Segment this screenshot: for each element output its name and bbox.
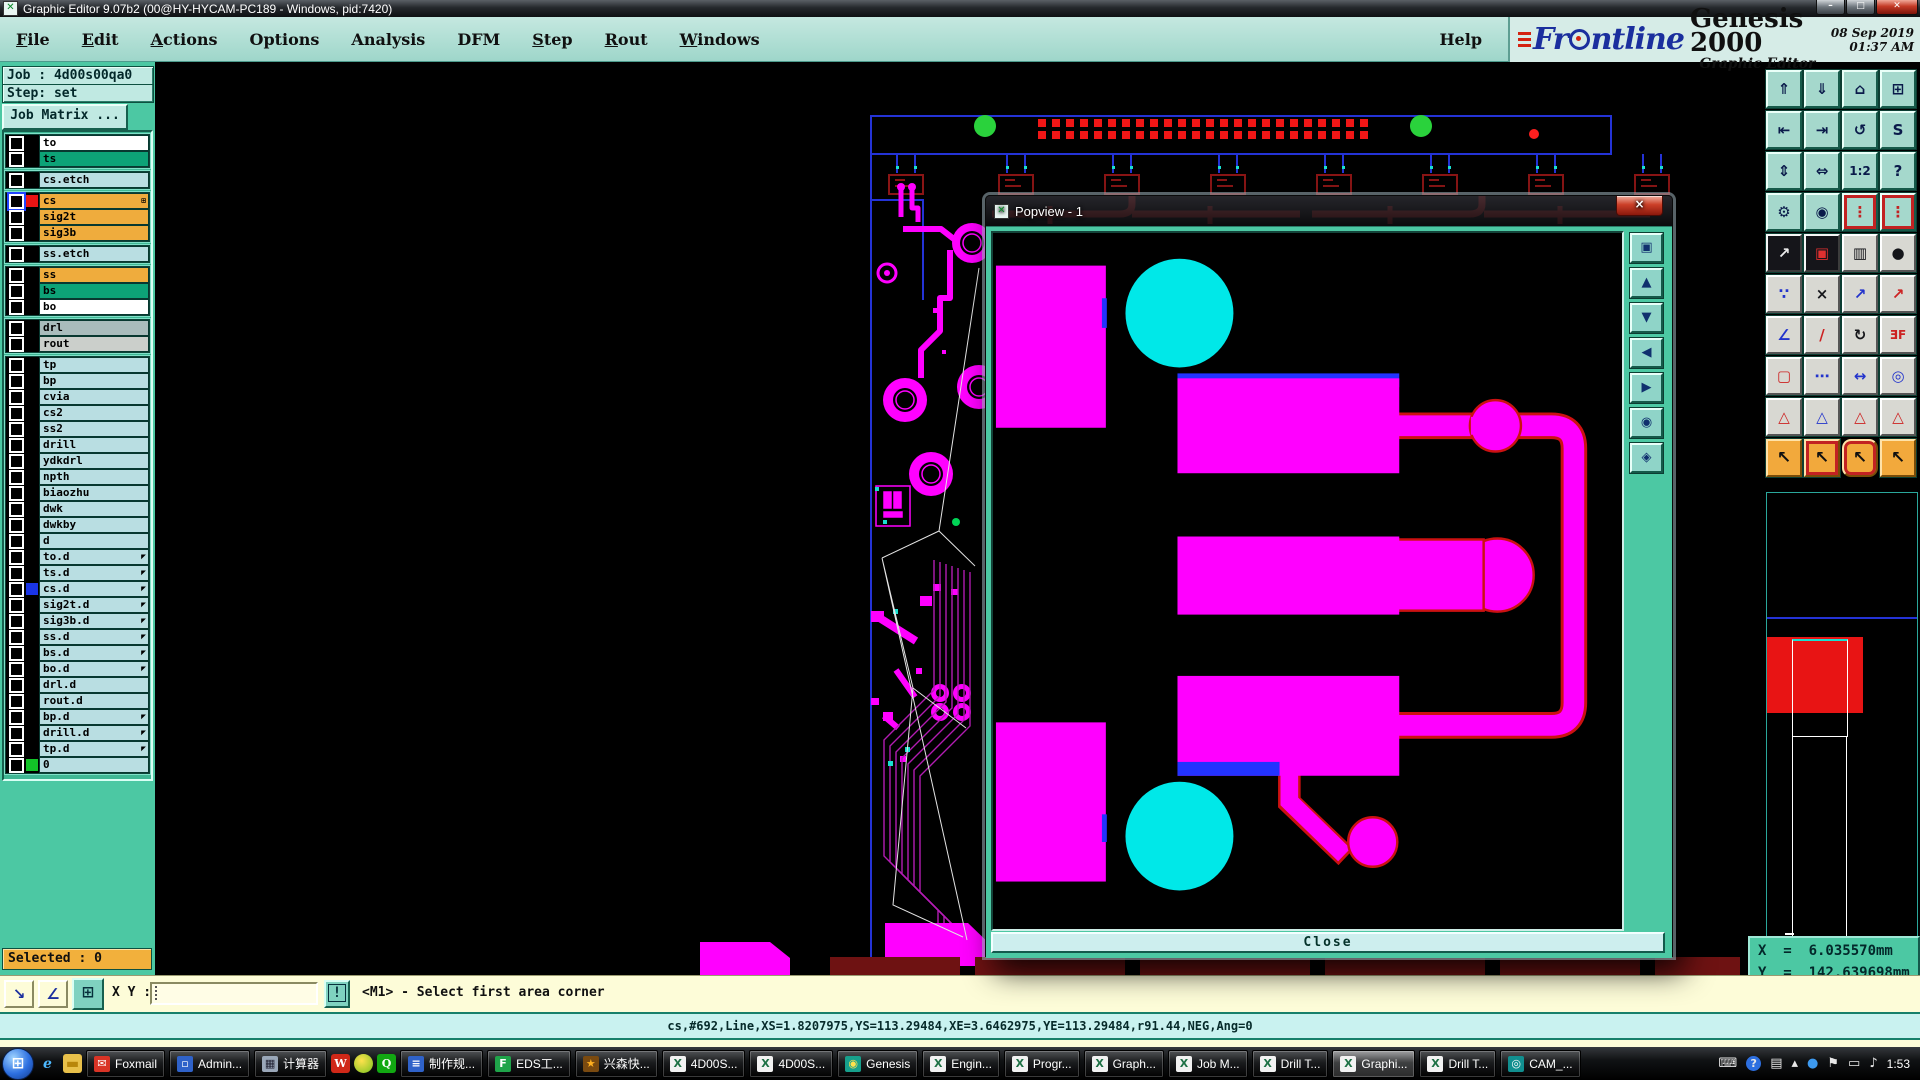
layer-visibility-checkbox[interactable]	[9, 152, 24, 167]
layer-visibility-checkbox[interactable]	[9, 321, 24, 336]
measure-ruler-button[interactable]: ▥	[1842, 234, 1878, 272]
system-tray: ⌨?▤▴●⚑▭♪ 1:53	[1718, 1056, 1920, 1071]
layer-name[interactable]: ss.etch	[39, 246, 149, 262]
layer-color-swatch[interactable]	[26, 551, 38, 563]
layer-name[interactable]: drill.d◤	[39, 725, 149, 741]
layer-name[interactable]: biaozhu	[39, 485, 149, 501]
layer-color-swatch[interactable]	[26, 301, 38, 313]
layer-name[interactable]: tp.d◤	[39, 741, 149, 757]
pan-right-icon[interactable]: ▶	[1630, 373, 1663, 403]
taskbar-item-xapp[interactable]: XJob M...	[1168, 1050, 1248, 1078]
layer-visibility-checkbox[interactable]	[9, 422, 24, 437]
layer-color-swatch[interactable]	[26, 137, 38, 149]
zoom-1-2-button[interactable]: 1:2	[1842, 152, 1878, 190]
layer-visibility-checkbox[interactable]	[9, 630, 24, 645]
text-caret	[155, 986, 157, 1001]
layer-row-d[interactable]: d	[6, 533, 149, 549]
layer-row-biaozhu[interactable]: biaozhu	[6, 485, 149, 501]
layer-name[interactable]: cs2	[39, 405, 149, 421]
layer-row-bo.d[interactable]: bo.d◤	[6, 661, 149, 677]
layer-visibility-checkbox[interactable]	[9, 136, 24, 151]
menu-options[interactable]: Options	[250, 30, 320, 49]
window-title-bar[interactable]: ✕ Graphic Editor 9.07b2 (00@HY-HYCAM-PC1…	[0, 0, 1920, 17]
job-step-box: Job : 4d00s00qa0 Step: set	[2, 66, 154, 103]
layer-color-swatch[interactable]	[26, 248, 38, 260]
layer-name[interactable]: rout	[39, 336, 149, 352]
layer-color-swatch[interactable]	[26, 519, 38, 531]
excel-icon: X	[757, 1056, 773, 1072]
popview-window[interactable]: ✕ Popview - 1 ×	[985, 195, 1673, 957]
layer-row-bp[interactable]: bp	[6, 373, 149, 389]
layer-visibility-checkbox[interactable]	[9, 566, 24, 581]
show-hidden-icon[interactable]: ▴	[1792, 1056, 1799, 1071]
select-single-button[interactable]: ↖	[1766, 439, 1802, 477]
job-label: Job : 4d00s00qa0	[3, 67, 153, 85]
layer-row-npth[interactable]: npth	[6, 469, 149, 485]
layer-row-ydkdrl[interactable]: ydkdrl	[6, 453, 149, 469]
layer-name[interactable]: ss	[39, 267, 149, 283]
folder-icon[interactable]: ▬	[63, 1054, 82, 1073]
brand-panel: Frntline Genesis 2000 Graphic Editor 08 …	[1508, 17, 1920, 62]
layer-visibility-checkbox[interactable]	[9, 470, 24, 485]
layer-name[interactable]: cs.etch	[39, 172, 149, 188]
select-pad-move-button[interactable]: ↗	[1766, 234, 1802, 272]
star-orange-icon: ★	[583, 1056, 599, 1072]
menu-actions[interactable]: Actions	[151, 30, 218, 49]
pan-view-button[interactable]: ⇔	[1804, 152, 1840, 190]
layer-name[interactable]: to	[39, 135, 149, 151]
layer-row-ss[interactable]: ss	[6, 267, 149, 283]
layer-visibility-checkbox[interactable]	[9, 268, 24, 283]
layer-name[interactable]: ss2	[39, 421, 149, 437]
layer-visibility-checkbox[interactable]	[9, 678, 24, 693]
layer-name[interactable]: bo	[39, 299, 149, 315]
green-app-icon[interactable]: Q	[377, 1054, 396, 1073]
layer-name[interactable]: to.d◤	[39, 549, 149, 565]
layer-visibility-checkbox[interactable]	[9, 173, 24, 188]
line-mode-button[interactable]: /	[1804, 316, 1840, 354]
ie-icon[interactable]: e	[38, 1054, 57, 1073]
layer-visibility-checkbox[interactable]	[9, 550, 24, 565]
selected-count: Selected : 0	[2, 948, 152, 970]
layer-color-swatch[interactable]	[26, 567, 38, 579]
grid-toggle-button[interactable]: ⊞	[72, 978, 104, 1010]
layer-visibility-checkbox[interactable]	[9, 226, 24, 241]
layer-visibility-checkbox[interactable]	[9, 390, 24, 405]
foxmail-icon: ✉	[94, 1056, 110, 1072]
taskbar-item-xapp[interactable]: XProgr...	[1004, 1050, 1080, 1078]
layer-row-ss2[interactable]: ss2	[6, 421, 149, 437]
layer-row-drill[interactable]: drill	[6, 437, 149, 453]
layer-color-swatch[interactable]	[26, 535, 38, 547]
zoom-out-icon[interactable]: ◈	[1630, 443, 1663, 473]
layer-color-swatch[interactable]	[26, 211, 38, 223]
taskbar-item-label: 4D00S...	[691, 1057, 738, 1071]
layer-row-sig2t[interactable]: sig2t	[6, 209, 149, 225]
serpentine-view-button[interactable]: S	[1880, 111, 1916, 149]
layer-visibility-checkbox[interactable]	[9, 662, 24, 677]
swap-frames-button[interactable]: ▣	[1804, 234, 1840, 272]
layer-visibility-checkbox[interactable]	[9, 247, 24, 262]
layer-row-cs2[interactable]: cs2	[6, 405, 149, 421]
maximize-button[interactable]: □	[1846, 0, 1875, 15]
layer-visibility-checkbox[interactable]	[9, 646, 24, 661]
layer-name[interactable]: cs.d◤	[39, 581, 149, 597]
menu-rout[interactable]: Rout	[605, 30, 648, 49]
move-origin-button[interactable]: ↗	[1842, 275, 1878, 313]
layer-visibility-checkbox[interactable]	[9, 598, 24, 613]
snap-target-button[interactable]: ◉	[1804, 193, 1840, 231]
zoom-page-down-button[interactable]: ⇓	[1804, 70, 1840, 108]
layer-row-bp.d[interactable]: bp.d◤	[6, 709, 149, 725]
layer-row-cvia[interactable]: cvia	[6, 389, 149, 405]
pan-left-icon[interactable]: ◀	[1630, 338, 1663, 368]
layer-visibility-checkbox[interactable]	[9, 582, 24, 597]
layer-visibility-checkbox[interactable]	[9, 210, 24, 225]
select-chain-button[interactable]: ↖	[1880, 439, 1916, 477]
delete-mode-button[interactable]: ×	[1804, 275, 1840, 313]
taskbar-item-genesis[interactable]: ◉Genesis	[837, 1050, 918, 1078]
taskbar-item-calculator[interactable]: ▦计算器	[254, 1050, 327, 1078]
layer-visibility-checkbox[interactable]	[9, 284, 24, 299]
layer-color-swatch[interactable]	[26, 338, 38, 350]
menu-help[interactable]: Help	[1439, 30, 1482, 49]
menu-dfm[interactable]: DFM	[457, 30, 500, 49]
step-label: Step: set	[3, 85, 153, 102]
undo-view-button[interactable]: ↺	[1842, 111, 1878, 149]
layer-color-swatch[interactable]	[26, 711, 38, 723]
popview-windows-icon[interactable]: ▣	[1630, 233, 1663, 263]
view-next-button[interactable]: ⇥	[1804, 111, 1840, 149]
layer-visibility-checkbox[interactable]	[9, 694, 24, 709]
layer-color-swatch[interactable]	[26, 759, 38, 771]
show-desktop-icon[interactable]: ▤	[1770, 1056, 1782, 1071]
taskbar-item-label: Graphi...	[1361, 1057, 1407, 1071]
layer-row-tp[interactable]: tp	[6, 357, 149, 373]
layer-visibility-checkbox[interactable]	[9, 758, 24, 773]
help-tray-icon[interactable]: ?	[1746, 1056, 1761, 1071]
taskbar-item-label: Engin...	[951, 1057, 992, 1071]
layer-visibility-checkbox[interactable]	[9, 300, 24, 315]
drill-arrow-icon: ◤	[141, 662, 146, 676]
layer-name[interactable]: bo.d◤	[39, 661, 149, 677]
layer-color-swatch[interactable]	[26, 174, 38, 186]
layer-group: cs⊞sig2tsig3b	[5, 192, 150, 242]
taskbar-item-excel[interactable]: X4D00S...	[749, 1050, 833, 1078]
layer-name[interactable]: bp	[39, 373, 149, 389]
copy-origin-button[interactable]: ↗	[1880, 275, 1916, 313]
layer-visibility-checkbox[interactable]	[9, 438, 24, 453]
xapp-icon: X	[1340, 1056, 1356, 1072]
menu-step[interactable]: Step	[532, 30, 572, 49]
popview-art	[993, 233, 1622, 929]
layer-color-swatch[interactable]	[26, 359, 38, 371]
layer-visibility-checkbox[interactable]	[9, 454, 24, 469]
corner-select-button[interactable]: ↘	[4, 980, 34, 1008]
layer-visibility-checkbox[interactable]	[9, 358, 24, 373]
zoom-in-icon[interactable]: ◉	[1630, 408, 1663, 438]
layer-color-swatch[interactable]	[26, 322, 38, 334]
layer-row-bs.d[interactable]: bs.d◤	[6, 645, 149, 661]
split-window-xy-button[interactable]: ⊞	[1880, 70, 1916, 108]
keyboard-tray-icon[interactable]: ⌨	[1718, 1056, 1737, 1071]
layer-visibility-checkbox[interactable]	[9, 614, 24, 629]
pad-capture-button[interactable]: ●	[1880, 234, 1916, 272]
layer-color-swatch[interactable]	[26, 407, 38, 419]
layer-visibility-checkbox[interactable]	[9, 742, 24, 757]
taskbar-item-floppy[interactable]: ▫Admin...	[169, 1050, 250, 1078]
layer-row-cs.d[interactable]: cs.d◤	[6, 581, 149, 597]
layer-row-cs[interactable]: cs⊞	[6, 193, 149, 209]
layer-color-swatch[interactable]	[26, 391, 38, 403]
layer-row-to.d[interactable]: to.d◤	[6, 549, 149, 565]
layer-row-tp.d[interactable]: tp.d◤	[6, 741, 149, 757]
layer-row-bs[interactable]: bs	[6, 283, 149, 299]
layer-name[interactable]: bs.d◤	[39, 645, 149, 661]
drill-arrow-icon: ◤	[141, 726, 146, 740]
taskbar-item-label: 制作规...	[429, 1055, 475, 1072]
close-button[interactable]: ✕	[1876, 0, 1918, 15]
layer-visibility-checkbox[interactable]	[9, 502, 24, 517]
stretch-line-button[interactable]: ⋯	[1804, 357, 1840, 395]
layer-name[interactable]: cvia	[39, 389, 149, 405]
layer-name[interactable]: ss.d◤	[39, 629, 149, 645]
calculator-icon: ▦	[262, 1056, 278, 1072]
layer-color-swatch[interactable]	[26, 455, 38, 467]
setup-tools-button[interactable]: ⚙	[1766, 193, 1802, 231]
layer-name[interactable]: sig2t	[39, 209, 149, 225]
select-frame-button[interactable]: ↖	[1804, 439, 1840, 477]
layer-stoplight-a-button[interactable]: ⋮	[1842, 193, 1878, 231]
layer-row-ts[interactable]: ts	[6, 151, 149, 167]
popview-title-bar[interactable]: ✕ Popview - 1 ×	[986, 196, 1672, 226]
layer-color-swatch[interactable]	[26, 727, 38, 739]
drill-arrow-icon: ◤	[141, 742, 146, 756]
layer-color-swatch[interactable]	[26, 285, 38, 297]
layer-color-swatch[interactable]	[26, 269, 38, 281]
layer-stoplight-b-button[interactable]: ⋮	[1880, 193, 1916, 231]
layer-color-swatch[interactable]	[26, 153, 38, 165]
taskbar-item-star-orange[interactable]: ★兴森快...	[575, 1050, 658, 1078]
layer-color-swatch[interactable]	[26, 679, 38, 691]
layer-color-swatch[interactable]	[26, 439, 38, 451]
layer-name[interactable]: dwk	[39, 501, 149, 517]
layer-group: cs.etch	[5, 171, 150, 189]
popview-canvas[interactable]	[991, 231, 1624, 931]
taskbar-item-green-f[interactable]: FEDS工...	[487, 1050, 571, 1078]
layer-name[interactable]: tp	[39, 357, 149, 373]
layer-visibility-checkbox[interactable]	[9, 337, 24, 352]
taskbar-item-label: Foxmail	[115, 1057, 157, 1071]
thunder-tray-icon[interactable]: ●	[1807, 1056, 1818, 1071]
peak-marker-d-button[interactable]: △	[1880, 398, 1916, 436]
pan-down-icon[interactable]: ▼	[1630, 303, 1663, 333]
layer-row-0[interactable]: 0	[6, 757, 149, 773]
menu-windows[interactable]: Windows	[680, 30, 760, 49]
zoom-extents-button[interactable]: ⇕	[1766, 152, 1802, 190]
layer-row-ss.etch[interactable]: ss.etch	[6, 246, 149, 262]
layer-row-ss.d[interactable]: ss.d◤	[6, 629, 149, 645]
layer-color-swatch[interactable]	[26, 487, 38, 499]
layer-row-drl[interactable]: drl	[6, 320, 149, 336]
select-polygon-button[interactable]: ↖	[1842, 439, 1878, 477]
layer-color-swatch[interactable]	[26, 471, 38, 483]
layer-visibility-checkbox[interactable]	[9, 710, 24, 725]
peak-marker-b-button[interactable]: △	[1804, 398, 1840, 436]
layer-color-swatch[interactable]	[26, 599, 38, 611]
xy-entry-input[interactable]	[150, 982, 318, 1005]
taskbar-item-doc-blue[interactable]: ≡制作规...	[400, 1050, 483, 1078]
volume-tray-icon[interactable]: ♪	[1869, 1056, 1877, 1071]
net-nodes-button[interactable]: ∵	[1766, 275, 1802, 313]
alert-button[interactable]: !	[324, 980, 350, 1008]
layer-color-swatch[interactable]	[26, 743, 38, 755]
zoom-page-up-button[interactable]: ⇑	[1766, 70, 1802, 108]
layer-row-bo[interactable]: bo	[6, 299, 149, 315]
taskbar-item-label: Drill T...	[1448, 1057, 1488, 1071]
layer-color-swatch[interactable]	[26, 195, 38, 207]
layer-row-drl.d[interactable]: drl.d	[6, 677, 149, 693]
layer-visibility-checkbox[interactable]	[9, 726, 24, 741]
layer-color-swatch[interactable]	[26, 423, 38, 435]
layer-row-ts.d[interactable]: ts.d◤	[6, 565, 149, 581]
layer-name[interactable]: rout.d	[39, 693, 149, 709]
task-items: ✉Foxmail▫Admin...▦计算器WQ≡制作规...FEDS工...★兴…	[86, 1050, 1581, 1078]
layer-color-swatch[interactable]	[26, 375, 38, 387]
genesis-icon: ◉	[845, 1056, 861, 1072]
layer-visibility-checkbox[interactable]	[9, 374, 24, 389]
layer-row-cs.etch[interactable]: cs.etch	[6, 172, 149, 188]
rotate-mode-button[interactable]: ↻	[1842, 316, 1878, 354]
drill-arrow-icon: ◤	[141, 630, 146, 644]
layer-color-swatch[interactable]	[26, 647, 38, 659]
taskbar-item-excel[interactable]: X4D00S...	[662, 1050, 746, 1078]
home-view-button[interactable]: ⌂	[1842, 70, 1878, 108]
over-view-navigator[interactable]	[1766, 492, 1918, 962]
menu-file[interactable]: File	[16, 30, 50, 49]
taskbar-item-xapp[interactable]: XGraphi...	[1332, 1050, 1415, 1078]
menu-bar: FileEditActionsOptionsAnalysisDFMStepRou…	[0, 17, 1508, 62]
layer-color-swatch[interactable]	[26, 695, 38, 707]
layer-row-rout.d[interactable]: rout.d	[6, 693, 149, 709]
popview-close-icon[interactable]: ×	[1616, 196, 1663, 216]
layer-name[interactable]: sig3b	[39, 225, 149, 241]
layer-name[interactable]: ts.d◤	[39, 565, 149, 581]
citrus-icon[interactable]	[354, 1054, 373, 1073]
layer-color-swatch[interactable]	[26, 615, 38, 627]
layer-name[interactable]: dwkby	[39, 517, 149, 533]
layer-name[interactable]: 0	[39, 757, 149, 773]
layer-name[interactable]: bp.d◤	[39, 709, 149, 725]
layer-row-dwk[interactable]: dwk	[6, 501, 149, 517]
layer-name[interactable]: drill	[39, 437, 149, 453]
navigator-guide-left	[1792, 736, 1793, 936]
view-previous-button[interactable]: ⇤	[1766, 111, 1802, 149]
excel-icon: X	[670, 1056, 686, 1072]
layer-row-to[interactable]: to	[6, 135, 149, 151]
taskbar-item-xapp[interactable]: XDrill T...	[1252, 1050, 1329, 1078]
xapp-icon: X	[1427, 1056, 1443, 1072]
layer-row-rout[interactable]: rout	[6, 336, 149, 352]
layer-visibility-checkbox[interactable]	[9, 518, 24, 533]
layer-expand-icon: ⊞	[141, 194, 146, 208]
start-button[interactable]: ⊞	[2, 1048, 34, 1080]
network-tray-icon[interactable]: ▭	[1848, 1056, 1860, 1071]
layer-visibility-checkbox[interactable]	[9, 406, 24, 421]
layer-color-swatch[interactable]	[26, 503, 38, 515]
circle-overlap-button[interactable]: ◎	[1880, 357, 1916, 395]
mirror-mode-button[interactable]: ƎF	[1880, 316, 1916, 354]
taskbar-item-cam[interactable]: ◎CAM_...	[1500, 1050, 1580, 1078]
pan-up-icon[interactable]: ▲	[1630, 268, 1663, 298]
application-window: ✕ Graphic Editor 9.07b2 (00@HY-HYCAM-PC1…	[0, 0, 1920, 1080]
xapp-icon: X	[1092, 1056, 1108, 1072]
window-title: Graphic Editor 9.07b2 (00@HY-HYCAM-PC189…	[23, 2, 392, 16]
layer-color-swatch[interactable]	[26, 631, 38, 643]
taskbar-item-xapp[interactable]: XDrill T...	[1419, 1050, 1496, 1078]
layer-row-dwkby[interactable]: dwkby	[6, 517, 149, 533]
layer-name[interactable]: bs	[39, 283, 149, 299]
layer-visibility-checkbox[interactable]	[9, 534, 24, 549]
menu-analysis[interactable]: Analysis	[351, 30, 425, 49]
taskbar-item-label: Admin...	[198, 1057, 242, 1071]
action-center-icon[interactable]: ⚑	[1827, 1056, 1839, 1071]
layer-color-swatch[interactable]	[26, 663, 38, 675]
wps-icon[interactable]: W	[331, 1054, 350, 1073]
job-matrix-button[interactable]: Job Matrix ...	[2, 104, 128, 130]
layer-row-sig3b[interactable]: sig3b	[6, 225, 149, 241]
popview-close-button[interactable]: Close	[991, 932, 1665, 953]
layer-row-sig3b.d[interactable]: sig3b.d◤	[6, 613, 149, 629]
layer-row-drill.d[interactable]: drill.d◤	[6, 725, 149, 741]
layer-group: tots	[5, 134, 150, 168]
layer-name[interactable]: sig2t.d◤	[39, 597, 149, 613]
dimension-mode-button[interactable]: ↔	[1842, 357, 1878, 395]
taskbar-item-xapp[interactable]: XEngin...	[922, 1050, 1000, 1078]
layer-name[interactable]: cs⊞	[39, 193, 149, 209]
layer-row-sig2t.d[interactable]: sig2t.d◤	[6, 597, 149, 613]
layer-name[interactable]: drl.d	[39, 677, 149, 693]
layer-visibility-checkbox[interactable]	[9, 194, 24, 209]
layer-name[interactable]: ydkdrl	[39, 453, 149, 469]
peak-marker-a-button[interactable]: △	[1766, 398, 1802, 436]
drill-arrow-icon: ◤	[141, 646, 146, 660]
layer-name[interactable]: npth	[39, 469, 149, 485]
app-icon: ✕	[3, 1, 18, 16]
datetime-display: 08 Sep 2019 01:37 AM	[1831, 26, 1914, 54]
board-top-band	[871, 115, 1669, 194]
layer-visibility-checkbox[interactable]	[9, 486, 24, 501]
sidebar: Job : 4d00s00qa0 Step: set Job Matrix ..…	[0, 62, 155, 975]
taskbar-item-xapp[interactable]: XGraph...	[1084, 1050, 1164, 1078]
taskbar-item-foxmail[interactable]: ✉Foxmail	[86, 1050, 165, 1078]
windows-taskbar: ⊞ e▬ ✉Foxmail▫Admin...▦计算器WQ≡制作规...FEDS工…	[0, 1047, 1920, 1080]
layer-name[interactable]: sig3b.d◤	[39, 613, 149, 629]
bottom-strip	[0, 1040, 1920, 1047]
menu-edit[interactable]: Edit	[82, 30, 119, 49]
layer-name[interactable]: ts	[39, 151, 149, 167]
peak-marker-c-button[interactable]: △	[1842, 398, 1878, 436]
navigator-viewport-box[interactable]	[1792, 639, 1848, 737]
layer-name[interactable]: drl	[39, 320, 149, 336]
angle-select-button[interactable]: ∠	[38, 980, 68, 1008]
layer-color-swatch[interactable]	[26, 583, 38, 595]
zoom-help-button[interactable]: ?	[1880, 152, 1916, 190]
frame-pad-button[interactable]: ▢	[1766, 357, 1802, 395]
angle-mode-button[interactable]: ∠	[1766, 316, 1802, 354]
layer-name[interactable]: d	[39, 533, 149, 549]
layer-color-swatch[interactable]	[26, 227, 38, 239]
